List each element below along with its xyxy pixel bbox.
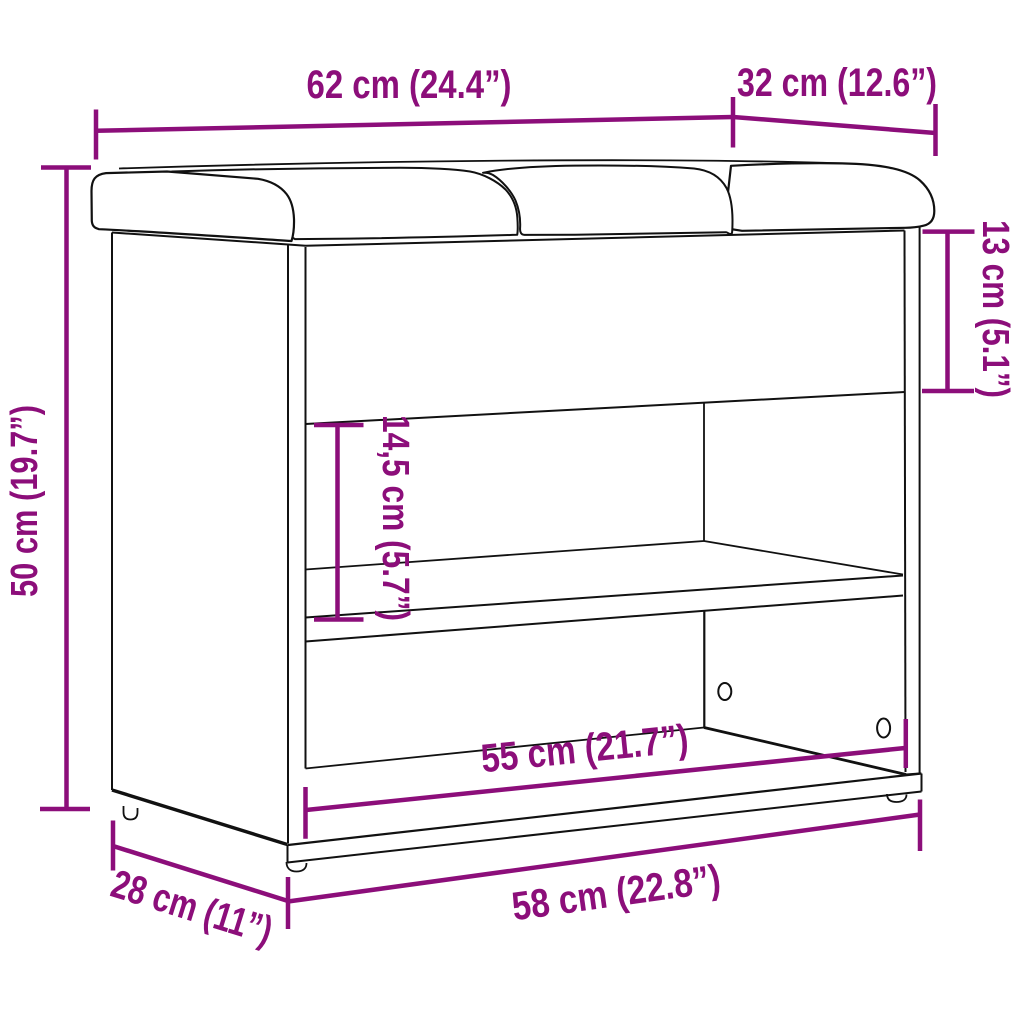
svg-text:13 cm (5.1”): 13 cm (5.1”) (974, 220, 1016, 398)
svg-text:62 cm (24.4”): 62 cm (24.4”) (307, 63, 512, 107)
svg-text:50 cm (19.7”): 50 cm (19.7”) (4, 405, 46, 597)
svg-text:14,5 cm (5.7”): 14,5 cm (5.7”) (374, 415, 416, 621)
svg-text:32 cm (12.6”): 32 cm (12.6”) (737, 61, 937, 105)
